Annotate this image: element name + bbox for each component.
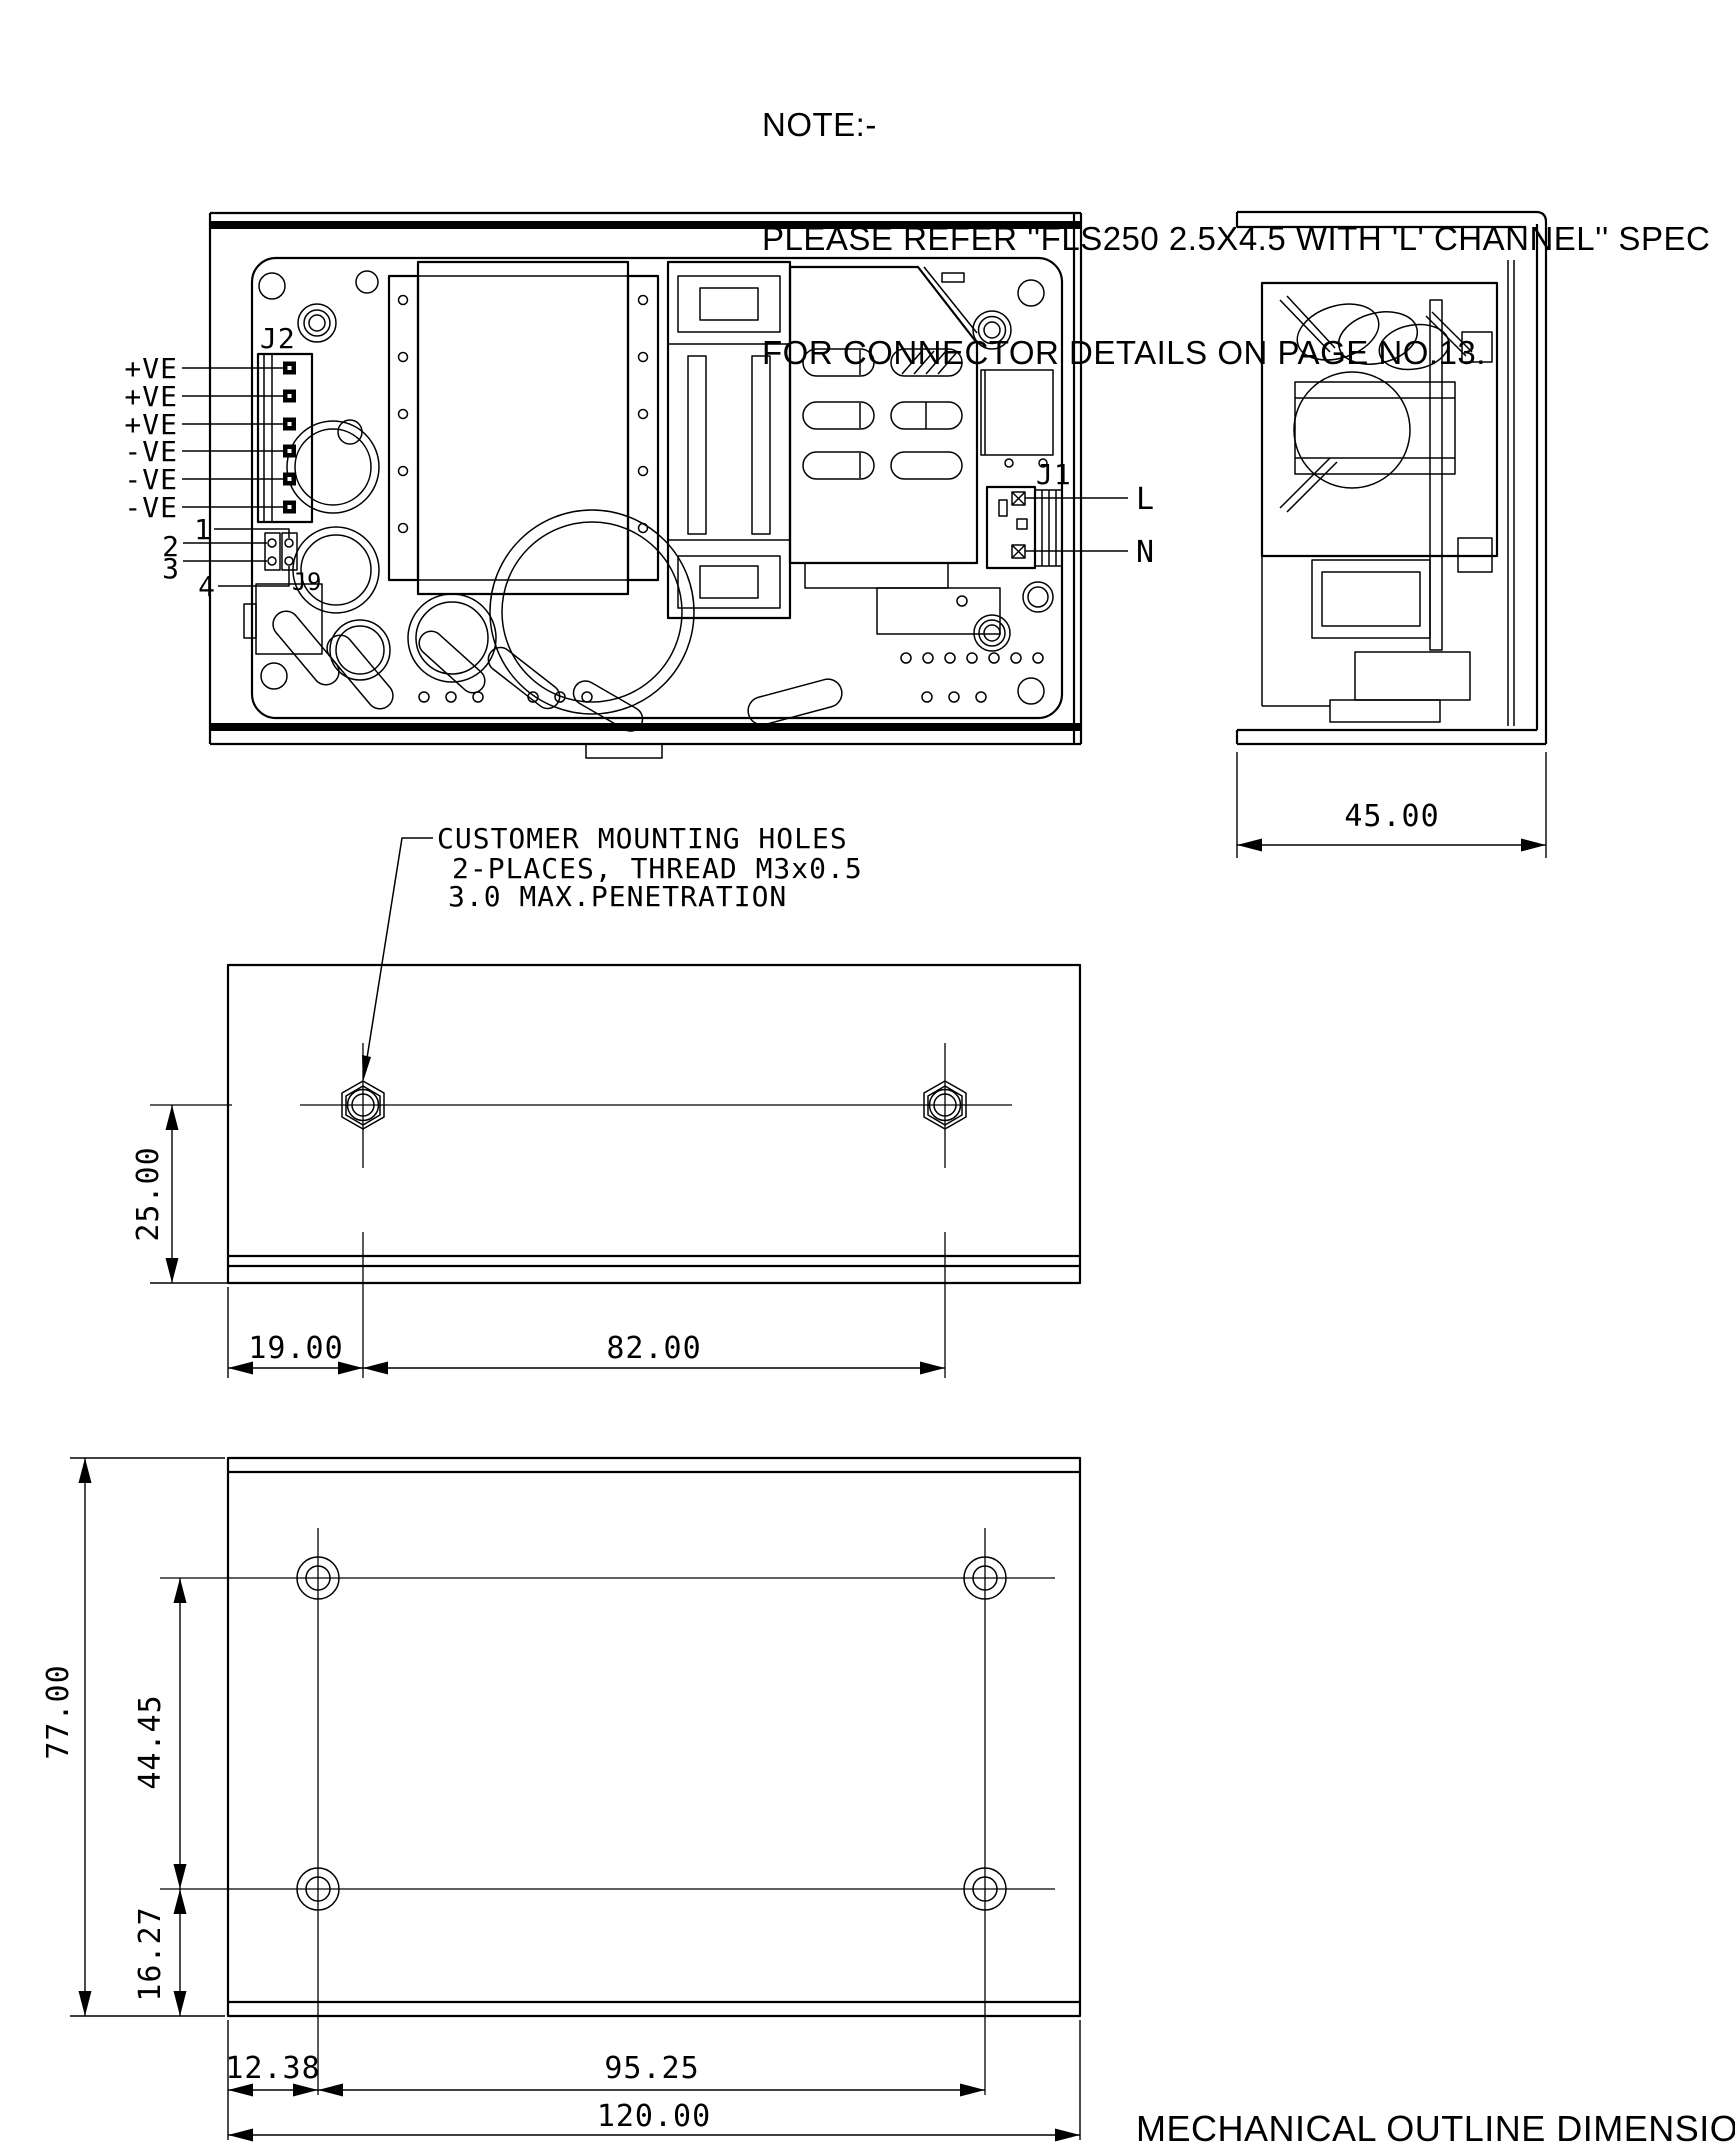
dim-hole-rows xyxy=(174,1578,187,1889)
aux-pin-4: 4 xyxy=(198,570,216,603)
dim-4445-text: 44.45 xyxy=(133,1694,168,1789)
aux-pin-1: 1 xyxy=(194,513,212,546)
pcb-corner-hole xyxy=(261,663,287,689)
j1-connector xyxy=(987,487,1128,568)
bottom-holes xyxy=(297,1557,1006,1910)
solder-hole-rows xyxy=(419,653,1043,702)
dim-1238-text: 12.38 xyxy=(225,2051,320,2086)
mounting-callout-leader xyxy=(362,838,433,1082)
j2-connector xyxy=(182,354,312,522)
line-label: L xyxy=(1136,482,1155,517)
top-view: J2 +VE +VE +VE -VE -VE -VE 1 2 3 4 J9 xyxy=(124,213,1155,758)
dim-9525-text: 95.25 xyxy=(604,2051,699,2086)
callout-line-3: 3.0 MAX.PENETRATION xyxy=(448,880,787,913)
vent-slot-hatched xyxy=(891,349,962,376)
coil-winding xyxy=(1290,294,1386,369)
side-view: 45.00 xyxy=(1237,212,1546,858)
aux-pin-3: 3 xyxy=(162,552,180,585)
dim-120-text: 120.00 xyxy=(597,2099,711,2134)
transformer-side xyxy=(1294,372,1410,488)
callout-line-1: CUSTOMER MOUNTING HOLES xyxy=(437,822,848,855)
pcb-corner-hole xyxy=(1018,280,1044,306)
axial-components xyxy=(268,606,845,735)
engineering-drawing: J2 +VE +VE +VE -VE -VE -VE 1 2 3 4 J9 xyxy=(0,0,1735,2146)
j9-label: J9 xyxy=(292,568,322,596)
dim-77-text: 77.00 xyxy=(41,1664,76,1759)
pcb-corner-hole xyxy=(259,273,285,299)
transformer xyxy=(389,262,658,594)
j1-label: J1 xyxy=(1036,458,1072,491)
dim-25-text: 25.00 xyxy=(131,1146,166,1241)
pin-label-nve3: -VE xyxy=(124,491,178,524)
drawing-sheet: NOTE:- PLEASE REFER ''FLS250 2.5X4.5 WIT… xyxy=(0,0,1735,2146)
vented-cover xyxy=(790,267,1000,634)
dim-19-text: 19.00 xyxy=(248,1331,343,1366)
heatsink-bracket xyxy=(668,262,790,618)
pcb-corner-hole xyxy=(1018,678,1044,704)
chassis-foot xyxy=(586,744,662,758)
bottom-view: 77.00 44.45 16.27 12 xyxy=(41,1458,1080,2142)
j2-label: J2 xyxy=(260,322,296,355)
dim-bottom-offset xyxy=(174,1889,187,2016)
mounting-view: 25.00 19.00 82.00 CUSTOMER MOUNTING HOLE… xyxy=(131,822,1080,1378)
dim-82-text: 82.00 xyxy=(606,1331,701,1366)
dim-45-text: 45.00 xyxy=(1344,799,1439,834)
dim-1627-text: 16.27 xyxy=(133,1906,168,2001)
neutral-label: N xyxy=(1136,535,1155,570)
